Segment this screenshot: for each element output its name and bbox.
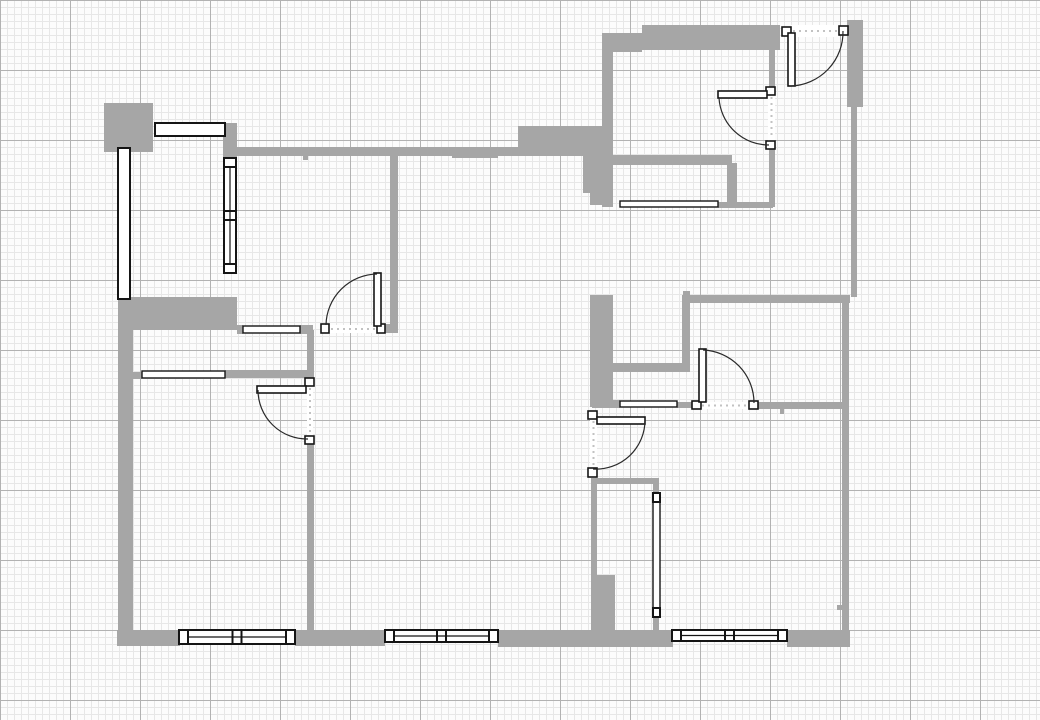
wall-segment[interactable] xyxy=(118,297,237,330)
wall-segment[interactable] xyxy=(769,37,775,87)
wall-segment[interactable] xyxy=(590,295,613,407)
window-top-right-room[interactable] xyxy=(620,201,718,207)
window-south-middle[interactable] xyxy=(385,630,498,642)
wall-segment[interactable] xyxy=(769,149,775,207)
wall-segment[interactable] xyxy=(677,402,693,408)
wall-segment[interactable] xyxy=(718,202,773,208)
window-south-left[interactable] xyxy=(179,630,295,644)
wall-segment[interactable] xyxy=(133,372,142,379)
door-top-right-room[interactable] xyxy=(718,87,775,149)
window-balcony-west[interactable] xyxy=(118,148,130,299)
wall-segment[interactable] xyxy=(452,155,498,158)
wall-segment[interactable] xyxy=(851,107,857,297)
window-closet[interactable] xyxy=(653,493,660,617)
wall-segment[interactable] xyxy=(237,325,243,334)
wall-segment[interactable] xyxy=(307,443,314,632)
wall-segment[interactable] xyxy=(842,303,849,633)
wall-segment[interactable] xyxy=(780,409,784,414)
window-south-right[interactable] xyxy=(672,630,787,641)
wall-segment[interactable] xyxy=(225,370,313,378)
window-mid-right[interactable] xyxy=(620,401,677,407)
wall-segment[interactable] xyxy=(613,155,732,165)
door-entry-top[interactable] xyxy=(782,25,848,86)
window-balcony-north[interactable] xyxy=(155,123,225,136)
wall-segment[interactable] xyxy=(303,156,308,160)
wall-segment[interactable] xyxy=(683,291,690,296)
wall-segment[interactable] xyxy=(837,605,843,610)
wall-segment[interactable] xyxy=(642,25,780,50)
floorplan-canvas[interactable] xyxy=(0,0,1040,720)
wall-segment[interactable] xyxy=(390,156,398,325)
door-mid-right-room[interactable] xyxy=(692,349,758,409)
window-hall-pass[interactable] xyxy=(243,326,300,333)
wall-segment[interactable] xyxy=(237,147,613,156)
wall-segment[interactable] xyxy=(518,126,613,148)
door-hall-south[interactable] xyxy=(588,411,645,477)
door-bedroom[interactable] xyxy=(257,378,314,444)
wall-segment[interactable] xyxy=(118,299,133,645)
wall-segment[interactable] xyxy=(104,103,153,152)
wall-segment[interactable] xyxy=(117,630,180,646)
wall-segment[interactable] xyxy=(591,478,659,484)
window-mid-left[interactable] xyxy=(142,371,225,378)
wall-segment[interactable] xyxy=(690,295,850,303)
wall-segment[interactable] xyxy=(392,253,397,257)
wall-segment[interactable] xyxy=(682,295,690,372)
wall-segment[interactable] xyxy=(613,363,682,372)
window-balcony-inner[interactable] xyxy=(224,158,236,273)
wall-segment[interactable] xyxy=(727,163,737,204)
wall-segment[interactable] xyxy=(591,575,615,631)
wall-segment[interactable] xyxy=(757,402,842,409)
floorplan xyxy=(0,0,1040,720)
wall-segment[interactable] xyxy=(602,33,613,207)
wall-segment[interactable] xyxy=(787,630,850,647)
door-living-room[interactable] xyxy=(321,273,385,333)
wall-segment[interactable] xyxy=(295,630,385,646)
wall-segment[interactable] xyxy=(847,20,863,107)
wall-segment[interactable] xyxy=(498,630,673,647)
wall-segment[interactable] xyxy=(653,617,659,631)
wall-segment[interactable] xyxy=(602,33,642,52)
wall-segment[interactable] xyxy=(592,400,620,408)
wall-segment[interactable] xyxy=(591,483,597,575)
